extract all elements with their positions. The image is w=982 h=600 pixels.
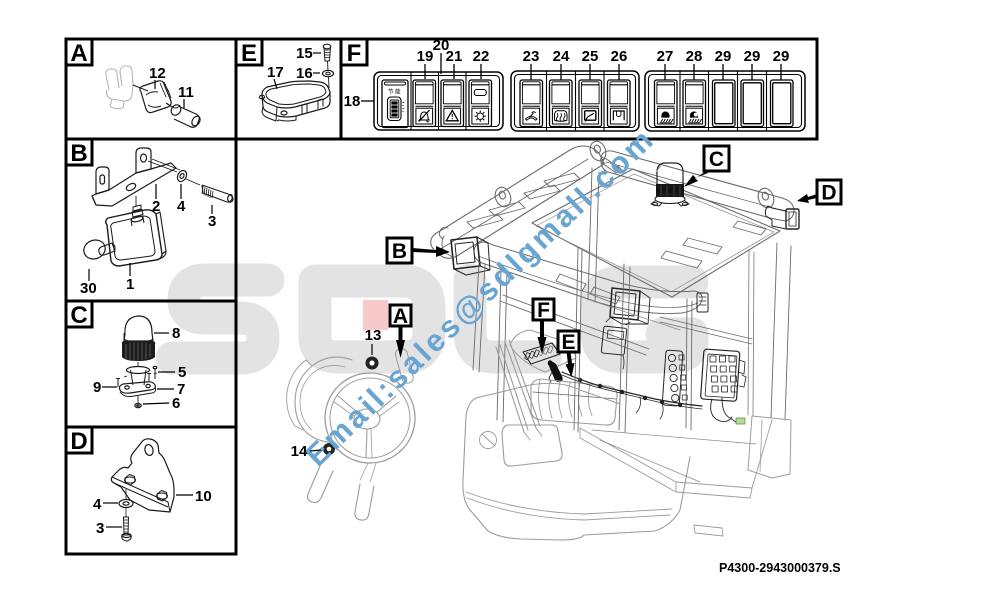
svg-text:22: 22 xyxy=(473,48,490,65)
svg-text:A: A xyxy=(393,305,408,328)
svg-text:28: 28 xyxy=(686,48,703,65)
svg-text:P4300-2943000379.S: P4300-2943000379.S xyxy=(719,561,841,575)
svg-text:F: F xyxy=(537,299,550,322)
svg-text:节能: 节能 xyxy=(388,88,402,96)
svg-text:16: 16 xyxy=(296,65,313,82)
svg-text:D: D xyxy=(70,428,87,455)
svg-text:2: 2 xyxy=(152,198,160,215)
svg-text:11: 11 xyxy=(178,84,194,101)
svg-text:A: A xyxy=(70,40,87,67)
svg-text:29: 29 xyxy=(715,48,732,65)
svg-text:5: 5 xyxy=(178,364,186,381)
svg-text:15: 15 xyxy=(296,45,313,62)
svg-text:23: 23 xyxy=(523,48,540,65)
svg-text:27: 27 xyxy=(657,48,674,65)
svg-text:C: C xyxy=(70,302,87,329)
svg-text:B: B xyxy=(70,140,87,167)
svg-text:29: 29 xyxy=(773,48,790,65)
svg-text:1: 1 xyxy=(126,276,134,293)
svg-text:24: 24 xyxy=(553,48,570,65)
svg-text:10: 10 xyxy=(195,488,212,505)
svg-text:30: 30 xyxy=(80,280,97,297)
svg-text:4: 4 xyxy=(177,198,186,215)
svg-text:F: F xyxy=(347,40,362,67)
svg-text:26: 26 xyxy=(611,48,628,65)
svg-text:14: 14 xyxy=(291,443,308,460)
svg-text:C: C xyxy=(709,148,724,171)
svg-text:E: E xyxy=(561,331,575,354)
svg-text:19: 19 xyxy=(417,48,434,65)
svg-text:29: 29 xyxy=(744,48,761,65)
svg-text:8: 8 xyxy=(172,325,180,342)
svg-text:6: 6 xyxy=(172,395,180,412)
svg-text:3: 3 xyxy=(96,520,104,537)
svg-text:13: 13 xyxy=(365,327,382,344)
svg-text:25: 25 xyxy=(582,48,599,65)
svg-text:17: 17 xyxy=(267,64,284,81)
svg-text:E: E xyxy=(241,40,257,67)
svg-text:12: 12 xyxy=(149,65,166,82)
svg-text:9: 9 xyxy=(93,379,101,396)
svg-text:4: 4 xyxy=(93,496,102,513)
svg-text:18: 18 xyxy=(344,93,361,110)
svg-text:D: D xyxy=(821,182,836,205)
svg-text:B: B xyxy=(392,240,407,263)
svg-text:3: 3 xyxy=(208,213,216,230)
svg-text:21: 21 xyxy=(446,48,463,65)
